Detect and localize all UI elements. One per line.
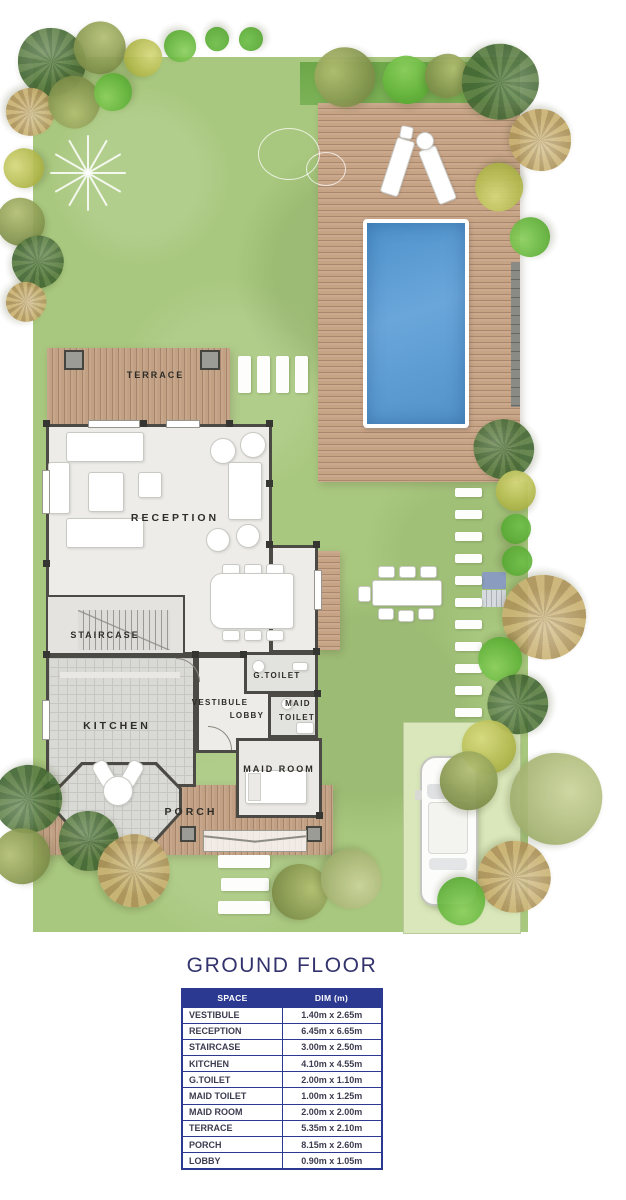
armchair [236,524,260,548]
space-cell: VESTIBULE [182,1007,282,1023]
window [42,470,50,514]
stepping-stone [257,356,270,393]
garden-chair [399,566,416,578]
dining-chair [222,630,240,641]
stepping-stone [455,488,482,497]
staircase-label: STAIRCASE [60,630,150,640]
dim-cell: 4.10m x 4.55m [282,1056,382,1072]
side-table [138,472,162,498]
stepping-stone [295,356,308,393]
table-row: MAID ROOM2.00m x 2.00m [182,1104,382,1120]
dim-cell: 2.00m x 2.00m [282,1104,382,1120]
space-cell: RECEPTION [182,1023,282,1039]
table-row: TERRACE5.35m x 2.10m [182,1120,382,1136]
space-cell: MAID ROOM [182,1104,282,1120]
coffee-table [88,472,124,512]
table-header-row: SPACE DIM (m) [182,989,382,1007]
stepping-stone [276,356,289,393]
tree [508,108,571,171]
column-marker [316,812,323,819]
armchair [206,528,230,552]
vestibule-label: VESTIBULE [180,698,260,707]
terrace-label: TERRACE [118,370,193,380]
dim-cell: 3.00m x 2.50m [282,1039,382,1055]
g-toilet-label: G.TOILET [246,671,308,680]
column-marker [192,651,199,658]
grill [482,572,506,589]
dim-cell: 1.00m x 1.25m [282,1088,382,1104]
chaise [48,462,70,514]
stepping-stone [455,686,482,695]
stepping-stone [455,576,482,585]
space-cell: KITCHEN [182,1056,282,1072]
kitchen-island [103,776,133,806]
table-row: RECEPTION6.45m x 6.65m [182,1023,382,1039]
table-row: PORCH8.15m x 2.60m [182,1137,382,1153]
stepping-stone [221,878,269,891]
col-header-dim: DIM (m) [282,989,382,1007]
window [314,570,322,610]
dandelion-tree-sketch [50,134,126,210]
dining-chair [266,630,284,641]
maid-room-label: MAID ROOM [236,764,322,774]
column-marker [43,560,50,567]
column-marker [240,651,247,658]
porch-post [180,826,196,842]
column-marker [140,420,147,427]
kitchen-counter [60,672,180,678]
table-row: KITCHEN4.10m x 4.55m [182,1056,382,1072]
sofa [228,462,262,520]
column-marker [314,690,321,697]
stepping-stone [455,620,482,629]
shower [296,722,314,734]
space-cell: STAIRCASE [182,1039,282,1055]
table-row: MAID TOILET1.00m x 1.25m [182,1088,382,1104]
tree [200,22,234,56]
column-marker [266,541,273,548]
garden-chair [418,608,434,620]
table-row: LOBBY0.90m x 1.05m [182,1153,382,1169]
car-rear-window [429,858,467,870]
dim-cell: 0.90m x 1.05m [282,1153,382,1169]
garden-chair [398,610,414,622]
maid-toilet-label-1: MAID [276,699,320,708]
space-cell: PORCH [182,1137,282,1153]
tree-sketch-outline [306,152,346,186]
column-marker [226,420,233,427]
table-row: G.TOILET2.00m x 1.10m [182,1072,382,1088]
table-row: VESTIBULE1.40m x 2.65m [182,1007,382,1023]
car-mirror [415,790,422,800]
stepping-stone [455,642,482,651]
terrace-post [64,350,84,370]
pillow [248,773,261,801]
dining-table [210,573,294,629]
dining-chair [244,630,262,641]
dim-cell: 1.40m x 2.65m [282,1007,382,1023]
space-cell: LOBBY [182,1153,282,1169]
column-marker [313,541,320,548]
column-marker [43,420,50,427]
site-plan: TERRACE RECEPTION STAIRCASE KITCHEN VEST… [0,0,626,950]
garden-side-table [358,586,371,602]
col-header-space: SPACE [182,989,282,1007]
column-marker [266,420,273,427]
dimensions-table: SPACE DIM (m) VESTIBULE1.40m x 2.65m REC… [181,988,383,1170]
table-row: STAIRCASE3.00m x 2.50m [182,1039,382,1055]
kitchen-label: KITCHEN [72,720,162,732]
space-cell: MAID TOILET [182,1088,282,1104]
column-marker [43,651,50,658]
swimming-pool [363,219,469,428]
terrace-post [200,350,220,370]
section-title: GROUND FLOOR [156,954,408,978]
porch-label: PORCH [160,806,222,818]
garden-table [372,580,442,606]
column-marker [266,480,273,487]
dim-cell: 8.15m x 2.60m [282,1137,382,1153]
garden-chair [420,566,437,578]
deck-bench [511,262,520,407]
pool-side-seat [399,125,414,140]
column-marker [313,648,320,655]
stepping-stone [455,554,482,563]
stepping-stone [238,356,251,393]
stepping-stone [218,901,270,914]
maid-toilet-label-2: TOILET [272,713,322,722]
dim-cell: 5.35m x 2.10m [282,1120,382,1136]
dim-cell: 2.00m x 1.10m [282,1072,382,1088]
reception-label: RECEPTION [125,512,225,524]
armchair [210,438,236,464]
garden-chair [378,608,394,620]
tree [238,26,264,52]
dim-cell: 6.45m x 6.65m [282,1023,382,1039]
stepping-stone [455,510,482,519]
garden-chair [378,566,395,578]
stepping-stone [455,598,482,607]
pool-side-table [416,132,434,150]
window [166,420,200,428]
sofa [66,432,144,462]
stepping-stone [455,708,482,717]
space-cell: G.TOILET [182,1072,282,1088]
sink [292,662,308,671]
space-cell: TERRACE [182,1120,282,1136]
stepping-stone [455,532,482,541]
window [88,420,140,428]
grill-base [482,590,506,607]
armchair [240,432,266,458]
window [42,700,50,740]
porch-post [306,826,322,842]
stepping-stone [218,855,270,868]
